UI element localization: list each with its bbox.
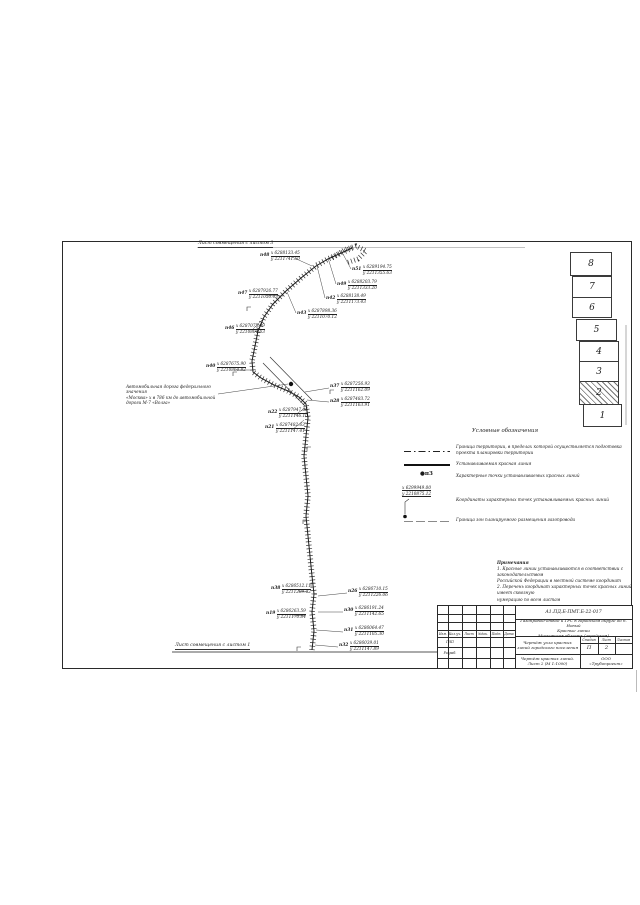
tb-vline xyxy=(462,606,463,668)
tb-listov-value xyxy=(615,643,632,654)
legend-point-marker: ●п3 xyxy=(420,471,433,477)
tb-project-line1: Газопровод-отвод и ГРС в городском округ… xyxy=(515,618,632,628)
tb-col-izm: Изм. xyxy=(438,630,448,637)
callout-p22: п22х 6287947.06у 2211146.10 xyxy=(268,408,308,419)
tb-col-data: Дата xyxy=(503,630,515,637)
road-label: Автомобильная дорога федерального значен… xyxy=(126,384,218,406)
callout-p26: п26х 6286710.15у 2211226.06 xyxy=(348,587,388,598)
note-line: 1. Красные линии устанавливаются в соотв… xyxy=(497,566,633,578)
legend-title: Условные обозначения xyxy=(440,428,570,434)
sheet-index-box-1: 1 xyxy=(583,404,622,427)
sheet-index-box-4: 4 xyxy=(579,341,619,362)
tb-vline xyxy=(476,606,477,668)
callout-p49: п49х 6288203.79у 2211333.20 xyxy=(337,280,377,291)
callout-p19: п19х 6286263.59у 2211170.84 xyxy=(266,609,306,620)
notes-block: Примечания 1. Красные линии устанавливаю… xyxy=(497,560,633,603)
sheet-number: 4 xyxy=(596,347,602,357)
callout-p38: п38х 6286512.11у 2211209.42 xyxy=(271,584,311,595)
match-line-bottom-label: Лист совмещения с листом 1 xyxy=(175,643,250,650)
tb-stage-header: Стадия xyxy=(580,636,598,643)
callout-p46: п46х 6287075.89у 2210804.63 xyxy=(225,324,265,335)
sheet-number: 1 xyxy=(600,411,606,421)
note-line: нумерацию по всем листам xyxy=(497,597,633,603)
sheet-number: 3 xyxy=(596,367,602,377)
tb-sheet-caption: Чертёж красных линий. Лист 2 (М 1:1000) xyxy=(515,654,580,668)
legend-red-line-symbol xyxy=(404,464,450,466)
title-block: Изм. Кол.уч. Лист №док. Подп. Дата ГИП Р… xyxy=(437,605,633,669)
tb-company: ООО «Трубопроект» xyxy=(580,654,632,668)
scanned-drawing-page: { "drawing": { "match_line_top": "Лист с… xyxy=(0,0,640,905)
tb-col-list: Лист xyxy=(462,630,476,637)
tb-role-gip: ГИП xyxy=(438,637,462,647)
legend-point-sample-label: п3 xyxy=(425,471,433,477)
sheet-number: 7 xyxy=(589,282,595,292)
legend-item-4-text: Координаты характерных точек устанавлива… xyxy=(456,497,628,503)
tb-drawing-title-line2: линий городского поселения xyxy=(517,645,578,650)
tb-list-header: Лист xyxy=(598,636,615,643)
legend-item-2-text: Устанавливаемая красная линия xyxy=(456,461,628,467)
tb-col-ndok: №док. xyxy=(476,630,490,637)
tb-list-value: 2 xyxy=(598,643,615,654)
match-line-top-label: Лист совмещения с листом 3 xyxy=(198,241,273,248)
sheet-number: 2 xyxy=(596,388,602,398)
callout-p43: п43х 6287898.36у 2211070.12 xyxy=(297,309,337,320)
sheet-index-box-6: 6 xyxy=(572,297,612,318)
tb-listov-header: Листов xyxy=(615,636,632,643)
road-label-line1: Автомобильная дорога федерального значен… xyxy=(126,384,218,395)
sheet-index-box-7: 7 xyxy=(572,276,612,298)
note-line: 2. Перечень координат характерных точек … xyxy=(497,584,633,596)
tb-vline xyxy=(490,606,491,668)
callout-p47: п47х 6287926.77у 2211050.43 xyxy=(238,289,278,300)
sheet-index-box-2-current: 2 xyxy=(579,381,619,405)
callout-p31: п31х 6286064.47у 2211105.30 xyxy=(344,626,384,637)
legend-zone-line-symbol xyxy=(404,521,450,522)
callout-p28: п28х 6287483.72у 2211163.91 xyxy=(330,397,370,408)
callout-p48: п48х 6288133.45у 2211741.50 xyxy=(260,251,300,262)
road-label-line3: дороги М-7 «Волга» xyxy=(126,400,218,405)
tb-project-name: Газопровод-отвод и ГРС в городском округ… xyxy=(515,619,632,636)
tb-role-razrab: Разраб. xyxy=(438,647,462,658)
callout-p40: п40х 6287675.90у 2210864.82 xyxy=(206,362,246,373)
tb-col-podp: Подп. xyxy=(490,630,503,637)
sheet-index-box-8: 8 xyxy=(570,252,612,276)
legend-item-3-text: Характерные точки устанавливаемых красны… xyxy=(456,473,628,479)
callout-p42: п42х 6288138.49у 2211173.43 xyxy=(326,294,366,305)
callout-p32: п32х 6286039.01у 2211147.89 xyxy=(339,641,379,652)
tb-drawing-title: Чертёж узла красных линий городского пос… xyxy=(515,636,580,654)
sheet-number: 5 xyxy=(594,325,600,335)
legend-coords-sample: х 6299949.00 у 2210875.12 xyxy=(402,485,431,497)
scan-artifact xyxy=(636,670,637,692)
callout-p37: п37х 6287256.93у 2211162.09 xyxy=(330,382,370,393)
tb-company-line2: «Трубопроект» xyxy=(589,661,622,666)
legend-sample-y: у 2210875.12 xyxy=(402,491,431,497)
legend-boundary-dashdot-line xyxy=(404,451,450,452)
sheet-number: 6 xyxy=(589,303,595,313)
sheet-number: 8 xyxy=(588,259,594,269)
tb-vline xyxy=(503,606,504,668)
callout-p30: п30х 6286191.24у 2211142.65 xyxy=(344,606,384,617)
callout-p51: п51х 6289194.75у 2211355.63 xyxy=(352,265,392,276)
legend-item-1-text: Граница территории, в пределах которой о… xyxy=(456,444,628,455)
sheet-index-box-5: 5 xyxy=(576,319,617,341)
tb-col-koluch: Кол.уч. xyxy=(448,630,462,637)
legend-item-5-text: Граница зон планируемого размещения газо… xyxy=(456,517,628,523)
tb-stage-value: П xyxy=(580,643,598,654)
callout-p21: п21х 6287482.63у 2211147.41 xyxy=(265,423,305,434)
sheet-index-box-3: 3 xyxy=(579,361,619,382)
